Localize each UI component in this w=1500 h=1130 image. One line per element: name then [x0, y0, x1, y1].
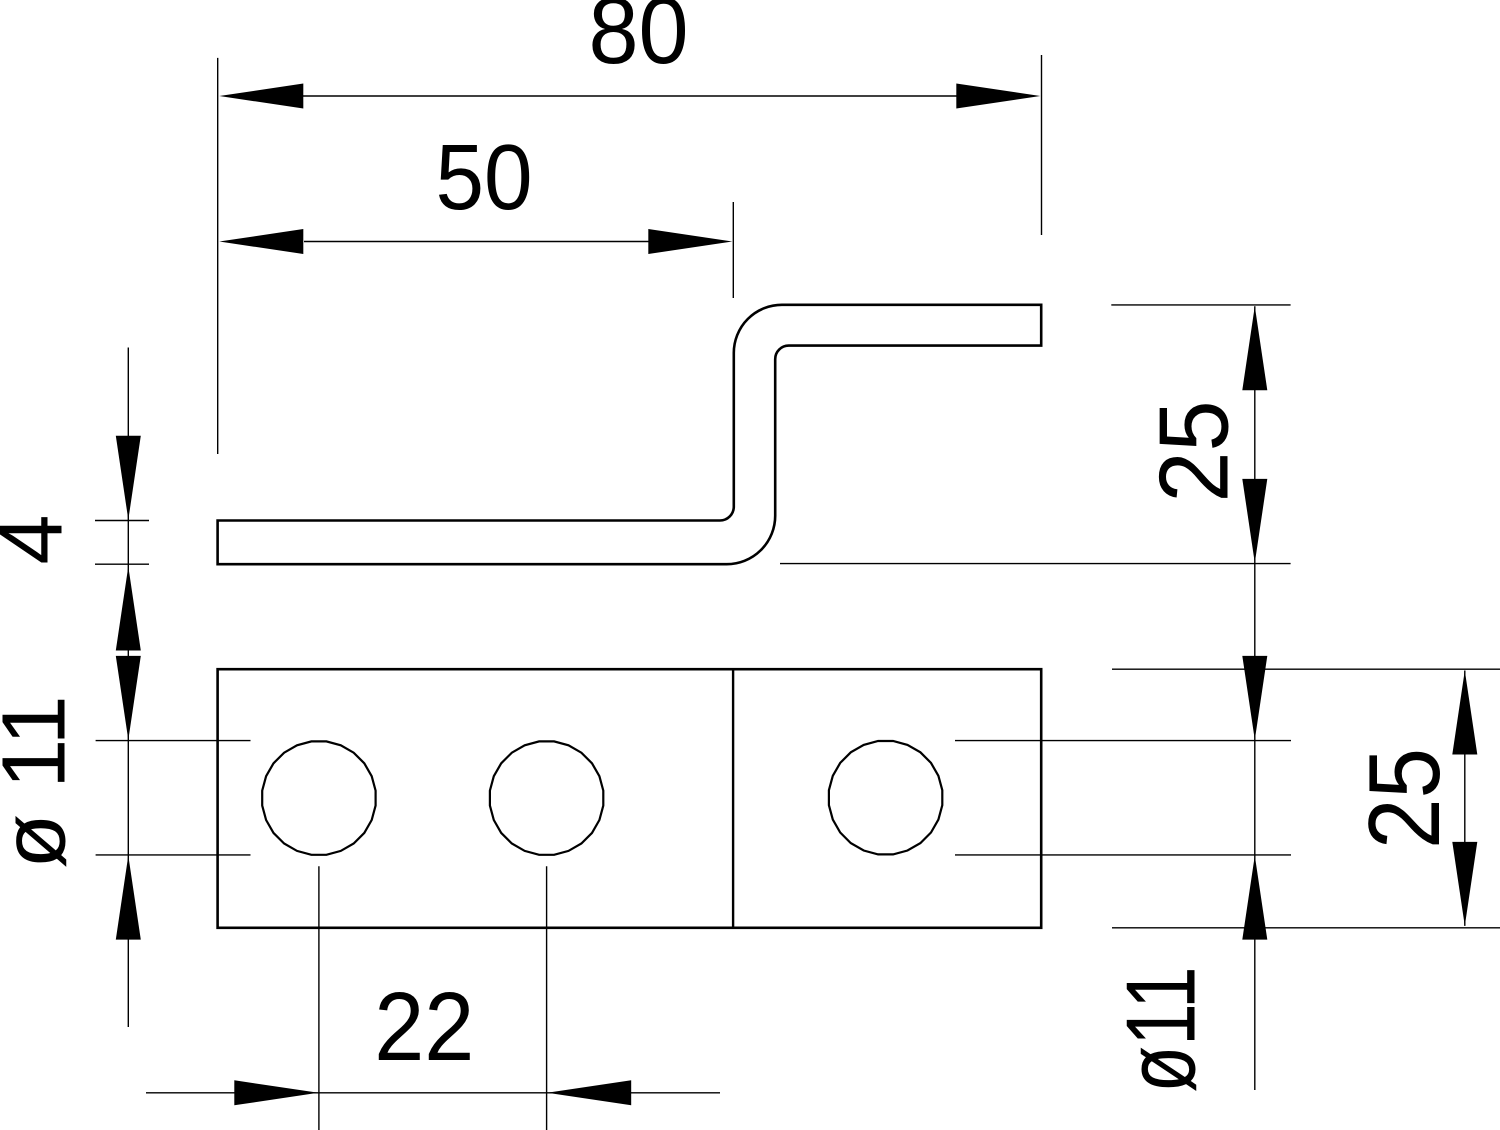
svg-text:25: 25 [1349, 748, 1461, 849]
svg-text:25: 25 [1140, 400, 1250, 502]
svg-text:ø11: ø11 [1105, 966, 1216, 1092]
svg-text:4: 4 [0, 514, 82, 564]
svg-text:80: 80 [588, 0, 688, 83]
svg-text:ø 11: ø 11 [0, 695, 85, 868]
svg-text:50: 50 [435, 126, 532, 230]
svg-text:22: 22 [374, 972, 474, 1081]
